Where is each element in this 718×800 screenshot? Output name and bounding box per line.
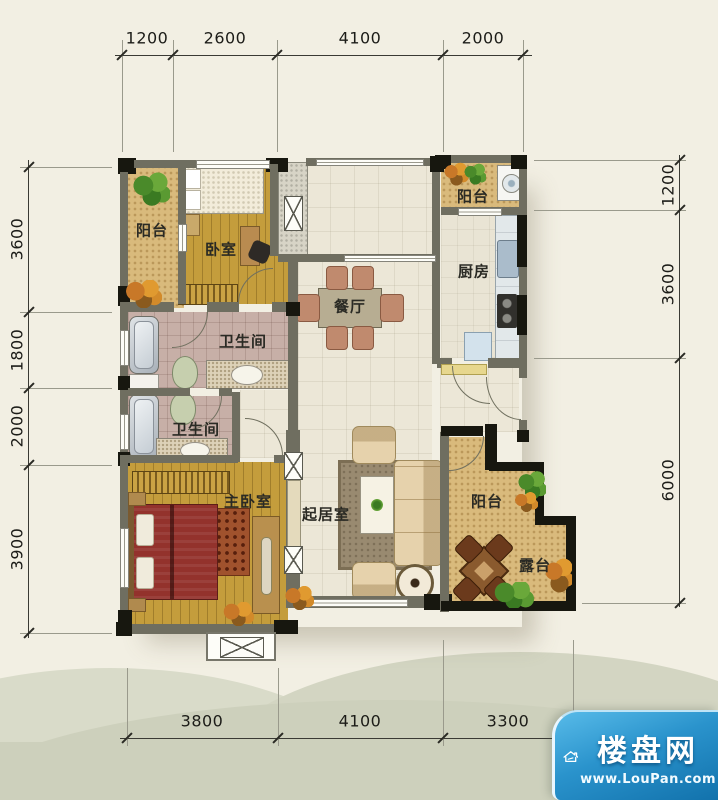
loupan-house-icon (563, 727, 578, 785)
extension-line (20, 633, 112, 634)
window (458, 208, 502, 216)
wall-segment (219, 388, 232, 396)
kitchen-sink (497, 240, 519, 278)
nightstand (128, 492, 146, 506)
extension-line (443, 40, 444, 152)
wall-segment (517, 430, 529, 442)
wall-segment (270, 164, 278, 256)
room-label-living-room: 起居室 (302, 504, 350, 525)
window (120, 528, 129, 588)
room-label-balcony-right: 阳台 (471, 491, 503, 512)
room-label-balcony-top-left: 阳台 (136, 220, 168, 241)
room-label-bathroom-upper: 卫生间 (219, 331, 267, 352)
dimension-value: 3800 (181, 712, 224, 731)
room-label-balcony-top-right: 阳台 (457, 186, 489, 207)
bathtub (129, 394, 159, 459)
window (120, 330, 129, 366)
toilet (172, 356, 198, 389)
extension-line (277, 40, 278, 152)
dimension-value: 2600 (204, 29, 247, 48)
window (196, 160, 270, 169)
extension-line (443, 640, 444, 746)
extension-line (582, 603, 686, 604)
extension-line (534, 160, 686, 161)
dimension-line-bottom (120, 738, 580, 739)
extension-line (20, 388, 112, 389)
dimension-value: 3300 (487, 712, 530, 731)
dining-chair (326, 266, 348, 290)
bay-window-x-symbol (220, 637, 264, 658)
wall-segment (432, 172, 440, 364)
wall-segment (178, 166, 186, 226)
window (120, 414, 129, 450)
dimension-value: 1200 (126, 29, 169, 48)
plant-icon (124, 280, 162, 308)
dimension-line-right (679, 155, 680, 607)
dimension-value: 6000 (659, 459, 678, 502)
sofa (394, 460, 442, 566)
bath-cabinet (129, 374, 159, 389)
dimension-value: 4100 (339, 29, 382, 48)
stove (497, 294, 517, 328)
bathtub (129, 316, 159, 374)
wall-segment (517, 295, 527, 335)
plant-icon (514, 492, 538, 512)
wardrobe-mirror (261, 537, 272, 595)
extension-line (173, 40, 174, 152)
pillow (136, 557, 154, 589)
wall-segment (286, 302, 300, 316)
wall-segment (519, 267, 527, 295)
plant-icon (464, 163, 486, 185)
room-label-bathroom-lower: 卫生间 (172, 419, 220, 440)
site-name: 楼盘网 (597, 726, 699, 770)
plant-icon (492, 582, 534, 608)
dining-chair (380, 294, 404, 322)
master-bed (126, 504, 218, 600)
master-dresser (132, 471, 230, 494)
dimension-value: 1800 (8, 329, 27, 372)
dimension-line-top (115, 55, 532, 56)
pillow (184, 169, 201, 189)
shaft-x-symbol (284, 452, 303, 480)
dimension-value: 4100 (339, 712, 382, 731)
wall-segment (517, 215, 527, 267)
plant-icon (222, 602, 254, 626)
extension-line (534, 210, 686, 211)
dimension-value: 3900 (8, 528, 27, 571)
room-label-kitchen: 厨房 (458, 261, 490, 282)
wall-segment (288, 262, 298, 458)
dimension-value: 2000 (462, 29, 505, 48)
dining-chair (326, 326, 348, 350)
bathtub-inner (134, 321, 154, 369)
armchair (352, 562, 396, 600)
window (300, 599, 408, 607)
room-label-dining: 餐厅 (334, 296, 366, 317)
wall-segment (120, 455, 238, 463)
room-label-terrace: 露台 (519, 555, 551, 576)
tv-cabinet (287, 480, 301, 548)
wall-segment (232, 392, 240, 462)
armchair (352, 426, 396, 464)
plant-icon (132, 172, 170, 206)
wall-segment (134, 160, 198, 168)
extension-line (534, 358, 686, 359)
wall-segment (116, 622, 132, 636)
logo-text-block: 楼盘网 www.LouPan.com (580, 726, 716, 787)
wall-segment (441, 426, 483, 436)
shaft-x-symbol (284, 196, 303, 231)
dimension-value: 3600 (8, 218, 27, 261)
dimension-value: 3600 (659, 263, 678, 306)
loupan-logo-badge[interactable]: 楼盘网 www.LouPan.com (552, 710, 718, 800)
site-url: www.LouPan.com (580, 772, 716, 787)
table-plant-icon (371, 499, 383, 511)
extension-line (523, 40, 524, 152)
bed-small (180, 164, 264, 214)
floorplan-canvas: 阳台 卧室 餐厅 阳台 厨房 卫生间 卫生间 主卧室 起居室 阳台 露台 120… (0, 0, 718, 800)
extension-line (20, 312, 112, 313)
vanity-sink (231, 365, 263, 385)
window (344, 255, 436, 262)
vanity-counter (206, 360, 290, 389)
extension-line (122, 40, 123, 152)
extension-line (20, 167, 112, 168)
dimension-value: 2000 (8, 405, 27, 448)
dining-chair (352, 326, 374, 350)
dimension-line-left (28, 160, 29, 638)
wall-segment (519, 169, 527, 212)
coffee-table (360, 476, 394, 534)
dining-chair (352, 266, 374, 290)
floor-dining-bay (306, 166, 432, 256)
plant-icon (284, 586, 314, 610)
wall-segment (274, 620, 298, 634)
wall-segment (440, 432, 449, 612)
wall-segment (128, 388, 190, 396)
dimension-value: 1200 (659, 164, 678, 207)
wall-segment (511, 155, 527, 169)
pillow (184, 190, 201, 210)
bathtub-inner (134, 399, 154, 454)
wardrobe (252, 516, 280, 614)
extension-line (20, 465, 112, 466)
fridge (464, 332, 492, 361)
pillow (136, 514, 154, 546)
wall-segment (178, 250, 186, 304)
window (178, 224, 187, 252)
shaft-x-symbol (284, 546, 303, 574)
room-label-bedroom: 卧室 (205, 239, 237, 260)
room-label-master-bedroom: 主卧室 (224, 491, 272, 512)
window (316, 159, 424, 166)
wall-segment (207, 302, 239, 312)
